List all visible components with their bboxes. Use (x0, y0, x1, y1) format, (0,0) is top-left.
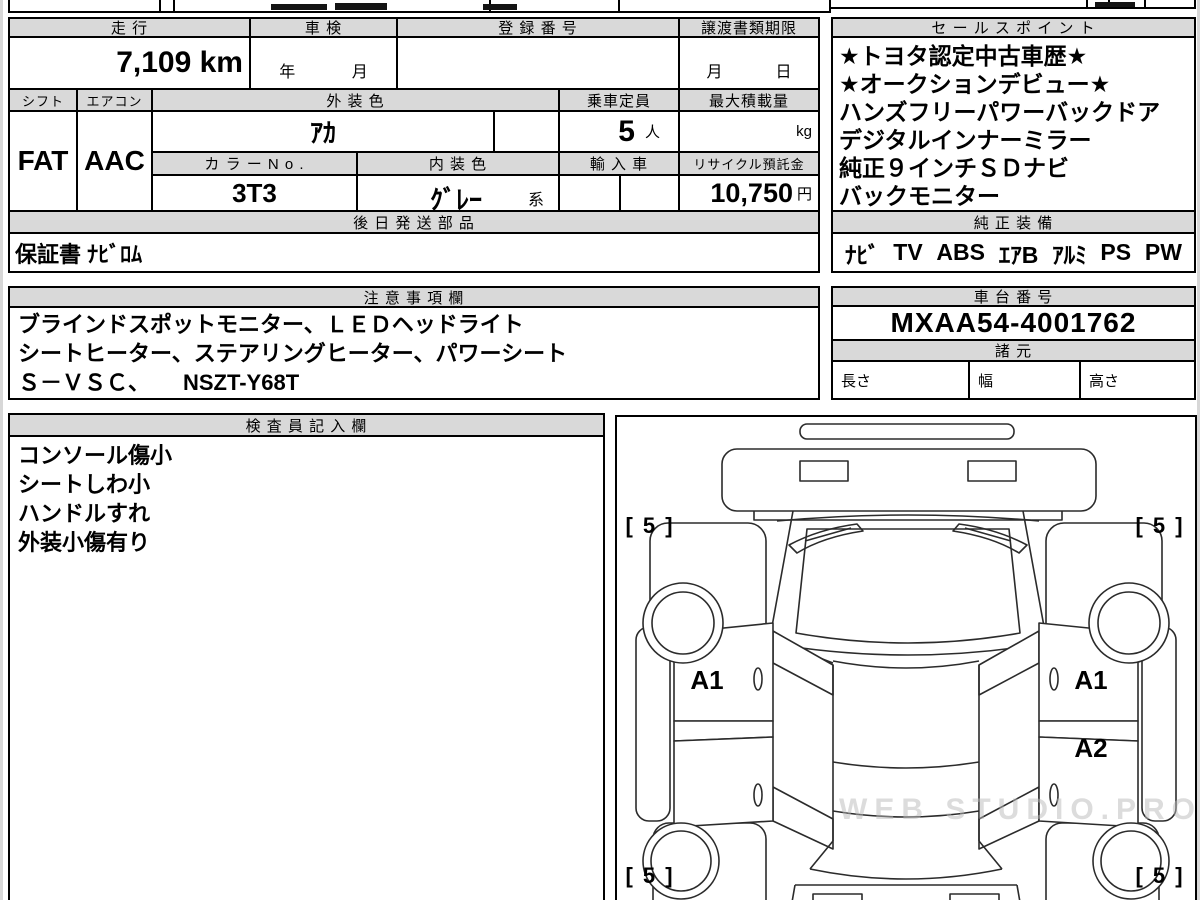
chassis-box: 車 台 番 号 MXAA54-4001762 諸 元 長さ 幅 高さ (831, 286, 1196, 400)
equipment-item: TV (893, 239, 922, 266)
transfer-deadline-value: 月 日 (680, 38, 818, 90)
registration-value (398, 38, 680, 90)
shift-header: シフト (10, 90, 78, 112)
interior-color-suffix: 系 (528, 186, 544, 210)
chassis-value: MXAA54-4001762 (833, 307, 1194, 341)
interior-color-text: ｸﾞﾚｰ (430, 180, 482, 212)
spec-height: 高さ (1081, 362, 1194, 398)
notes-line: ブラインドスポットモニター、ＬＥＤヘッドライト (18, 310, 810, 339)
equipment-item: ABS (936, 239, 985, 266)
capacity-number: 5 (618, 115, 635, 149)
shaken-header: 車 検 (251, 19, 398, 38)
tire-depth-rear-left: [ 5 ] (619, 863, 681, 889)
recycle-header: リサイクル預託金 (680, 153, 818, 176)
sales-points-box: セ ー ル ス ポ イ ン ト ★トヨタ認定中古車歴★★オークションデビュー★ハ… (831, 17, 1196, 273)
damage-mark-right-front-door: A1 (1059, 665, 1123, 696)
notes-line: シートヒーター、ステアリングヒーター、パワーシート (18, 339, 810, 368)
color-no-header: カ ラ ー N o . (153, 153, 358, 176)
mileage-value: 7,109 km (10, 38, 251, 90)
inspector-header: 検 査 員 記 入 欄 (10, 415, 603, 437)
auction-sheet: 走 行 車 検 登 録 番 号 譲渡書類期限 7,109 km 年 月 月 日 … (0, 0, 1200, 900)
capacity-header: 乗車定員 (560, 90, 680, 112)
equipment-item: PS (1100, 239, 1131, 266)
sales-points-header: セ ー ル ス ポ イ ン ト (833, 19, 1194, 38)
transfer-month-unit: 月 (706, 58, 722, 82)
import-value-left (560, 176, 621, 212)
specs-header: 諸 元 (833, 341, 1194, 362)
aircon-header: エアコン (78, 90, 153, 112)
exterior-color-subcell (495, 112, 560, 153)
exterior-color-header: 外 装 色 (153, 90, 560, 112)
shift-value: FAT (10, 112, 78, 212)
tire-depth-front-left: [ 5 ] (619, 513, 681, 539)
notes-box: 注 意 事 項 欄 ブラインドスポットモニター、ＬＥＤヘッドライトシートヒーター… (8, 286, 820, 400)
damage-mark-left-front-door: A1 (675, 665, 739, 696)
vehicle-info-table: 走 行 車 検 登 録 番 号 譲渡書類期限 7,109 km 年 月 月 日 … (8, 17, 820, 273)
equipment-item: ﾅﾋﾞ (845, 236, 880, 270)
transfer-deadline-header: 譲渡書類期限 (680, 19, 818, 38)
sales-point-line: ★トヨタ認定中古車歴★ (839, 42, 1188, 70)
notes-header: 注 意 事 項 欄 (10, 288, 818, 308)
tire-depth-front-right: [ 5 ] (1129, 513, 1191, 539)
recycle-value: 10,750 円 (680, 176, 818, 212)
inspector-line: コンソール傷小 (18, 441, 595, 470)
shaken-value: 年 月 (251, 38, 398, 90)
inspector-line: シートしわ小 (18, 470, 595, 499)
equipment-item: ｴｱB (999, 236, 1039, 270)
inspector-line: 外装小傷有り (18, 528, 595, 557)
spec-width: 幅 (970, 362, 1081, 398)
equipment-item: PW (1145, 239, 1182, 266)
import-value-right (621, 176, 680, 212)
tire-depth-rear-right: [ 5 ] (1129, 863, 1191, 889)
sales-point-line: バックモニター (839, 182, 1188, 210)
import-header: 輸 入 車 (560, 153, 680, 176)
inspector-box: 検 査 員 記 入 欄 コンソール傷小シートしわ小ハンドルすれ外装小傷有り (8, 413, 605, 900)
equipment-list: ﾅﾋﾞTVABSｴｱBｱﾙﾐPSPW (833, 234, 1194, 271)
capacity-unit: 人 (645, 121, 660, 142)
interior-color-header: 内 装 色 (358, 153, 560, 176)
inspector-line: ハンドルすれ (18, 499, 595, 528)
later-parts-value: 保証書 ﾅﾋﾞﾛﾑ (10, 234, 818, 271)
recycle-amount: 10,750 (710, 178, 793, 209)
car-diagram-box: WEB STUDIO.PRO [ 5 ] [ 5 ] [ 5 ] [ 5 ] A… (615, 415, 1197, 900)
equipment-header: 純 正 装 備 (833, 212, 1194, 234)
later-parts-header: 後 日 発 送 部 品 (10, 212, 818, 234)
max-load-header: 最大積載量 (680, 90, 818, 112)
damage-mark-right-rear-door: A2 (1059, 733, 1123, 764)
exterior-color-value: ｱｶ (153, 112, 495, 153)
sales-points-list: ★トヨタ認定中古車歴★★オークションデビュー★ハンズフリーパワーバックドアデジタ… (833, 38, 1194, 212)
spec-length: 長さ (833, 362, 970, 398)
shaken-month-unit: 月 (352, 58, 368, 82)
chassis-header: 車 台 番 号 (833, 288, 1194, 307)
sales-point-line: ハンズフリーパワーバックドア (839, 98, 1188, 126)
notes-list: ブラインドスポットモニター、ＬＥＤヘッドライトシートヒーター、ステアリングヒータ… (10, 308, 818, 398)
interior-color-value: ｸﾞﾚｰ 系 (358, 176, 560, 212)
recycle-unit: 円 (797, 183, 812, 204)
aircon-value: AAC (78, 112, 153, 212)
color-no-value: 3T3 (153, 176, 358, 212)
sales-point-line: デジタルインナーミラー (839, 126, 1188, 154)
max-load-value: kg (680, 112, 818, 153)
notes-line: Ｓ－ＶＳＣ、 NSZT-Y68T (18, 368, 810, 397)
capacity-value: 5 人 (560, 112, 680, 153)
watermark: WEB STUDIO.PRO (839, 793, 1200, 827)
equipment-item: ｱﾙﾐ (1052, 236, 1087, 270)
shaken-year-unit: 年 (279, 58, 295, 82)
mileage-header: 走 行 (10, 19, 251, 38)
transfer-day-unit: 日 (775, 58, 791, 82)
sales-point-line: 純正９インチＳＤナビ (839, 154, 1188, 182)
inspector-list: コンソール傷小シートしわ小ハンドルすれ外装小傷有り (10, 437, 603, 900)
registration-header: 登 録 番 号 (398, 19, 680, 38)
car-diagram (617, 417, 1195, 900)
sales-point-line: ★オークションデビュー★ (839, 70, 1188, 98)
